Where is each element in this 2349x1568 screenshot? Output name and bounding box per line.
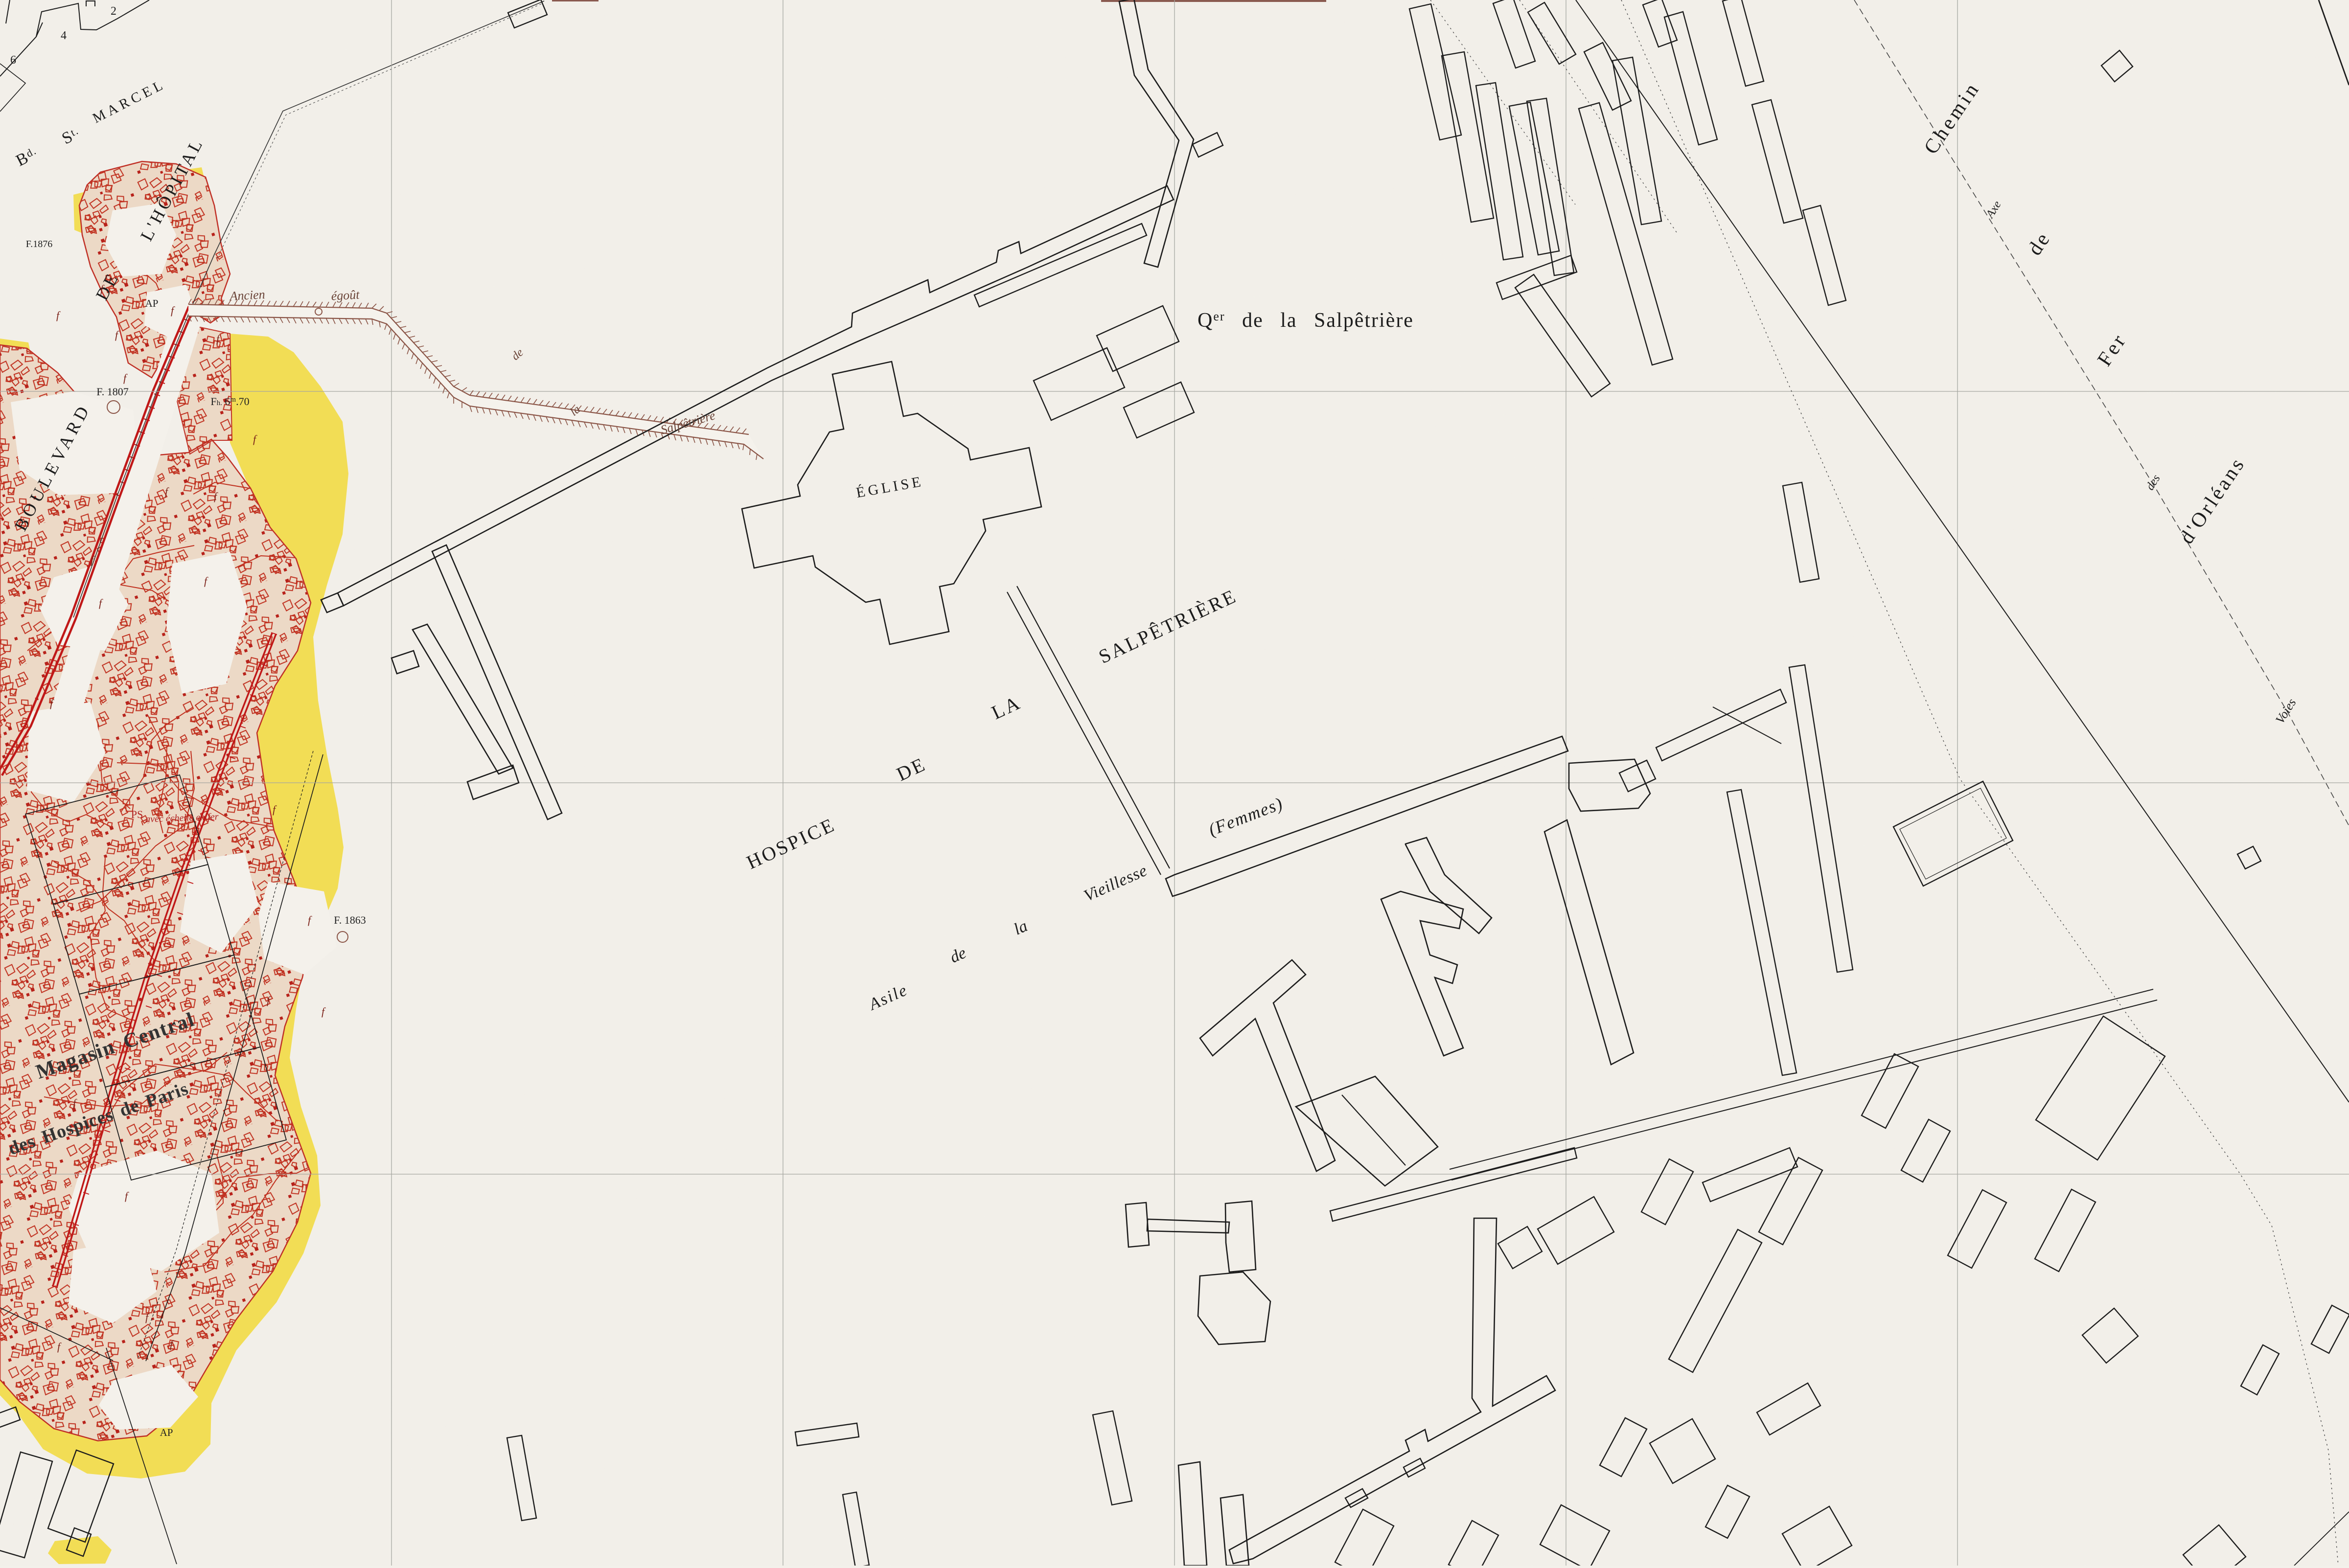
svg-text:6: 6 bbox=[10, 54, 16, 67]
svg-text:PS: PS bbox=[131, 808, 143, 820]
svg-text:F. 1863: F. 1863 bbox=[334, 914, 366, 926]
svg-text:AP: AP bbox=[145, 297, 159, 309]
svg-text:F.1876: F.1876 bbox=[26, 239, 53, 250]
svg-text:Ancien: Ancien bbox=[229, 287, 266, 303]
svg-text:4: 4 bbox=[61, 29, 67, 42]
svg-text:AP: AP bbox=[160, 1427, 173, 1438]
svg-text:Qer de la Salpêtrière: Qer de la Salpêtrière bbox=[1198, 309, 1414, 332]
svg-text:Fh. 6m.70: Fh. 6m.70 bbox=[210, 395, 249, 408]
svg-text:F. 1807: F. 1807 bbox=[96, 386, 128, 398]
svg-text:2: 2 bbox=[111, 5, 116, 18]
svg-text:égoût: égoût bbox=[331, 287, 360, 303]
